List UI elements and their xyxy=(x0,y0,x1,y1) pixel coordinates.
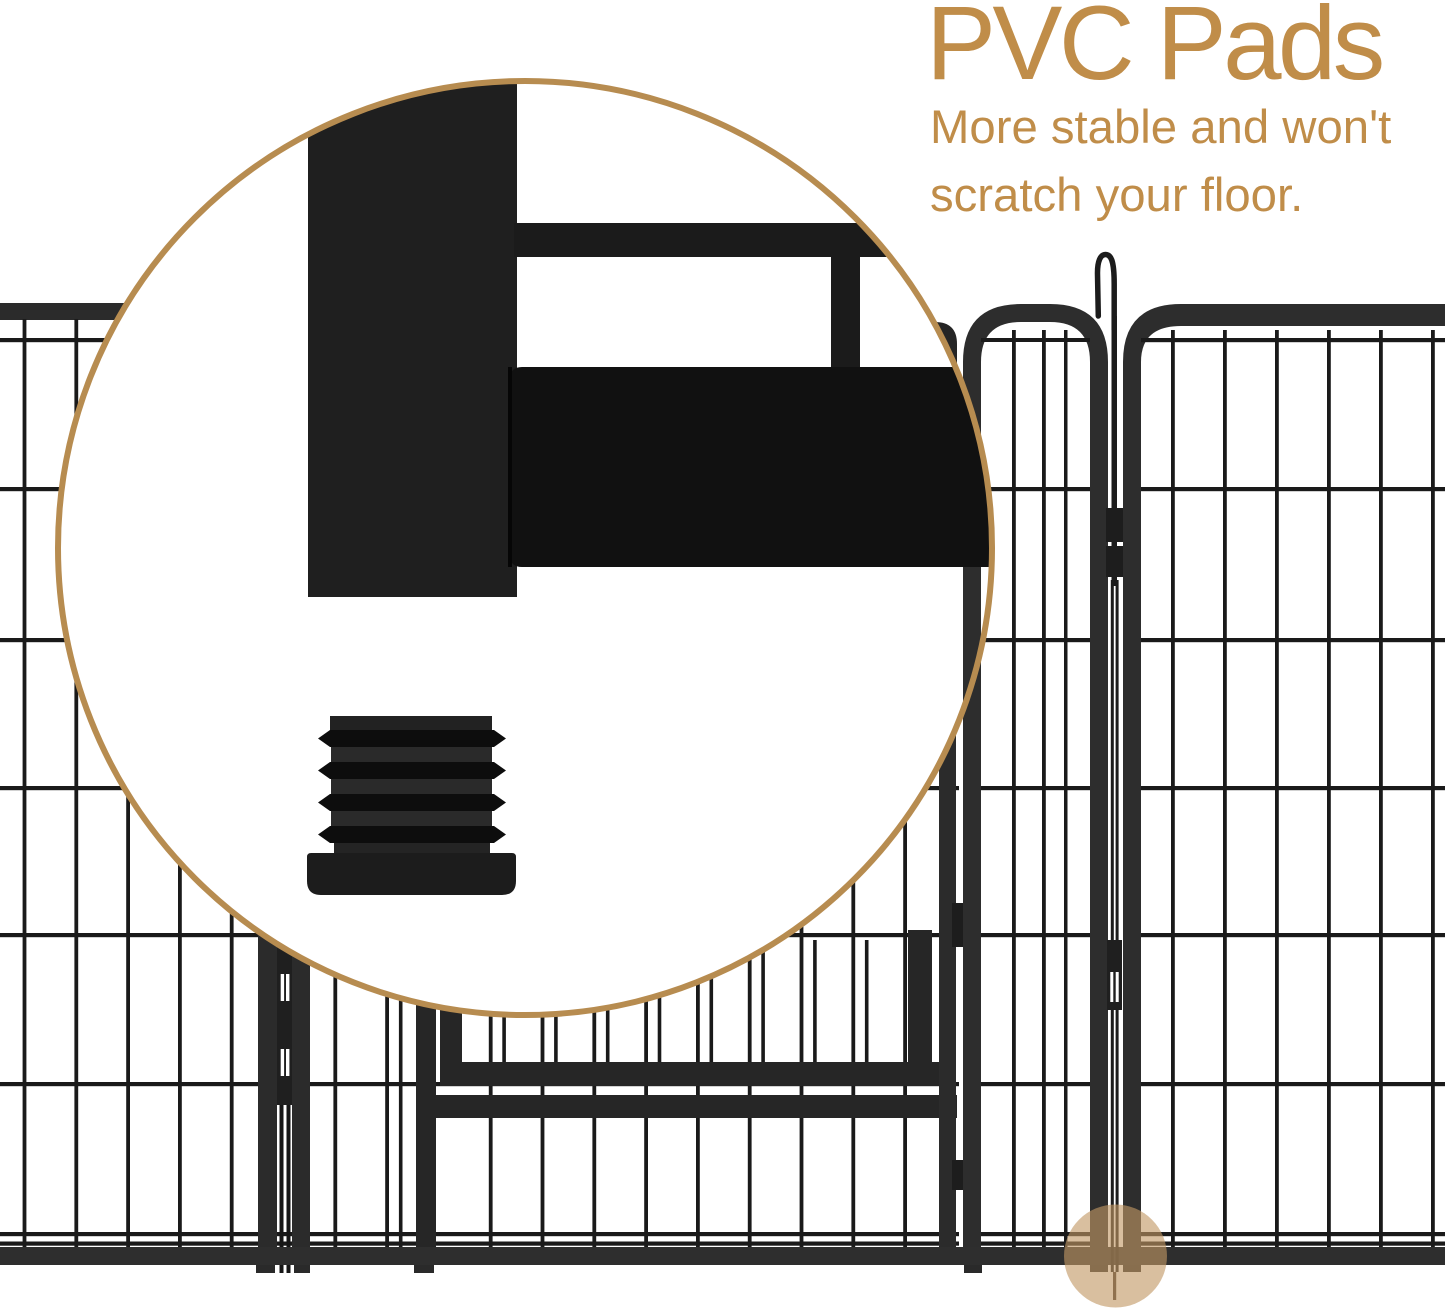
svg-text:PVC Pads: PVC Pads xyxy=(926,0,1382,102)
svg-text:More stable and won't: More stable and won't xyxy=(930,101,1391,154)
svg-text:scratch your floor.: scratch your floor. xyxy=(930,169,1303,222)
